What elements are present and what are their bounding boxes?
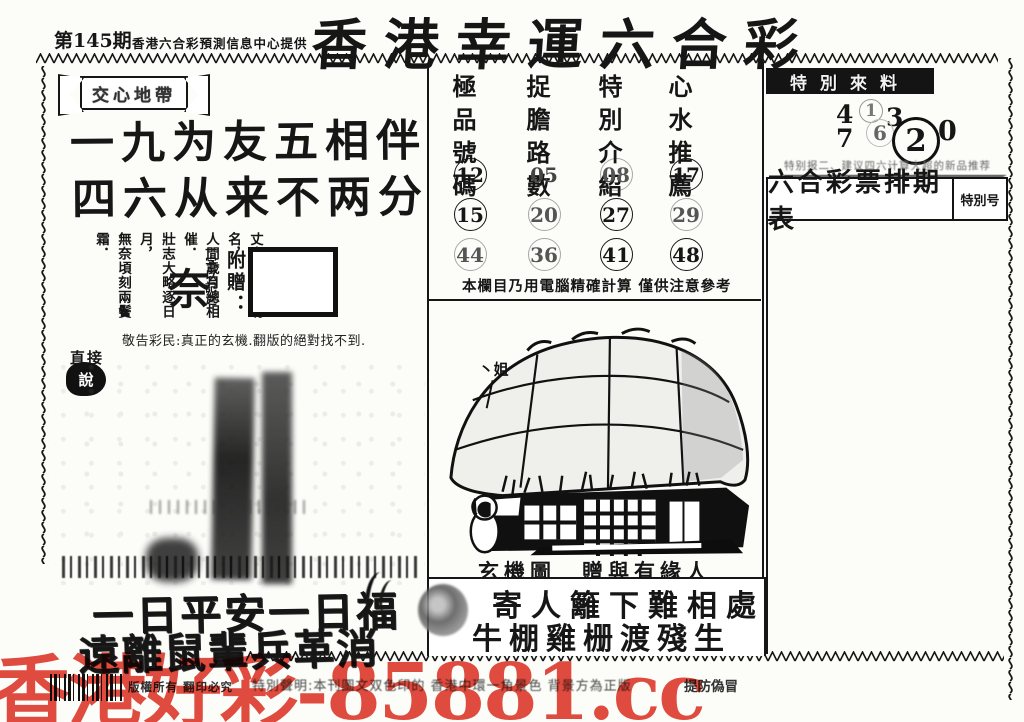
issue-number: 第145期 [54, 26, 132, 53]
tips-number-column: 05 20 36 [524, 158, 564, 271]
circled-number: 29 [670, 198, 703, 231]
page-title: 香港幸運六合彩 [309, 0, 819, 80]
special-material-label: 特別來料 [766, 68, 934, 94]
red-watermark: 香港好彩-85881.cc [0, 630, 704, 722]
circled-number: 12 [454, 158, 487, 191]
circled-number: 20 [528, 198, 561, 231]
tips-number-column: 12 15 44 [450, 158, 490, 271]
roof-label: 丶姐 [479, 360, 509, 378]
decorative-border-right [1003, 58, 1017, 700]
gift-label: 附贈： [222, 250, 249, 316]
circled-number: 15 [454, 198, 487, 231]
main-verse-line2: 四六从来不两分 [72, 160, 430, 227]
lottery-tip-sheet: 第145期 香港六合彩預測信息中心提供 香港幸運六合彩 交心地帶 一九为友五相伴… [0, 0, 1024, 722]
circled-number: 44 [454, 238, 487, 271]
gift-empty-box [248, 247, 338, 317]
circled-number: 27 [600, 198, 633, 231]
ink-speckles [62, 556, 418, 578]
hut-roof-shading [681, 351, 743, 482]
circled-number: 48 [670, 238, 703, 271]
ink-smudge [211, 378, 255, 581]
schedule-table-header: 六合彩票排期表 特別号 [766, 177, 1008, 221]
schedule-table-left-border [766, 217, 768, 654]
provider-line: 香港六合彩預測信息中心提供 [132, 33, 308, 52]
mystery-picture: 丶姐 [433, 310, 761, 556]
hint-character-note: 一字以記之 [203, 244, 219, 307]
special-issue-badge: 特別号 [952, 179, 1006, 219]
tips-number-column: 08 27 41 [596, 158, 636, 271]
circled-number: 05 [528, 158, 561, 191]
ink-smudge [262, 372, 292, 584]
special-number: 0 [938, 116, 957, 147]
divider-left-middle [427, 68, 429, 578]
decorative-border-top [36, 53, 998, 65]
poem-column: 無奈頃刻兩鬢霜． [90, 232, 134, 336]
schedule-title: 六合彩票排期表 [768, 179, 952, 219]
circled-number: 17 [670, 158, 703, 191]
divider-middle-right [762, 62, 764, 654]
ribbon-label: 交心地帶 [92, 81, 176, 106]
computer-calculation-note: 本欄目乃用電腦精確計算 僅供注意參考 [462, 275, 732, 296]
seal-stamp-icon [418, 584, 468, 636]
ribbon-banner: 交心地帶 [80, 76, 188, 110]
circled-number: 08 [600, 158, 633, 191]
circled-number: 41 [600, 238, 633, 271]
circled-number: 36 [528, 238, 561, 271]
dog-illustration [471, 496, 499, 553]
anti-piracy-notice: 敬告彩民:真正的玄機.翻版的絕對找不到. [122, 330, 366, 349]
middle-horizontal-rule [429, 299, 761, 301]
tips-number-column: 17 29 48 [666, 158, 706, 271]
decorative-border-left [36, 66, 48, 564]
special-number-circled-faint: 6 [866, 119, 894, 147]
ink-speckles [150, 500, 310, 514]
special-number: 7 [836, 124, 853, 153]
